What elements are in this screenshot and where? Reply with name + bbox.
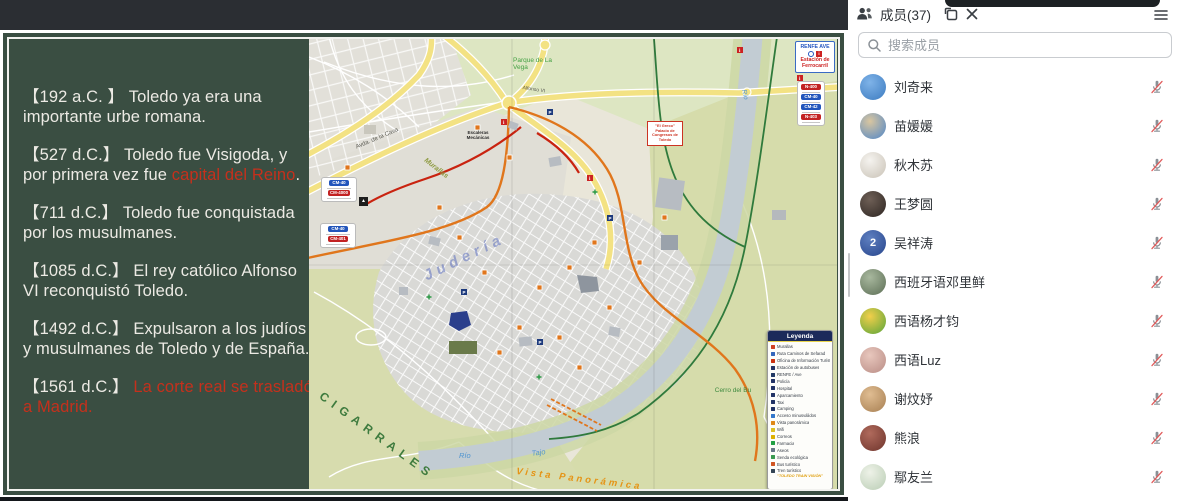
shared-screen-bottom-bar	[0, 497, 848, 501]
map-legend: Leyenda Murallas Ruta Caminos de Sefarad	[767, 330, 833, 490]
history-paragraph: 【192 a.C. 】 Toledo ya era una importante…	[23, 87, 313, 128]
avatar	[860, 191, 886, 217]
road-signs-east: N-400CM-40CM-42N-403	[797, 81, 825, 126]
member-name: 王梦圆	[894, 194, 1149, 213]
member-row[interactable]: 苗媛媛	[848, 106, 1179, 145]
member-row[interactable]: 秋木苏	[848, 145, 1179, 184]
svg-text:P: P	[609, 216, 612, 221]
legend-row: Camping	[771, 406, 830, 413]
member-name: 谢炆妤	[894, 389, 1149, 408]
museo-santa-cruz	[655, 177, 685, 210]
avatar	[860, 113, 886, 139]
legend-row: Oficina de Información Turística	[771, 357, 830, 364]
legend-swatch	[771, 373, 775, 377]
close-icon[interactable]	[964, 6, 980, 22]
legend-row: Aparcamiento	[771, 392, 830, 399]
member-name: 西语杨才钧	[894, 311, 1149, 330]
cerro-del-bu-label: Cerro del Bu	[711, 387, 755, 394]
legend-swatch	[771, 400, 775, 404]
member-row[interactable]: 鄢友兰	[848, 457, 1179, 496]
panel-title: 成员(37)	[880, 4, 931, 24]
avatar	[860, 425, 886, 451]
greco-gardens	[449, 341, 477, 354]
member-row[interactable]: 西班牙语邓里鲜	[848, 262, 1179, 301]
member-row[interactable]: 刘奇来	[848, 67, 1179, 106]
road-sign: CM-40	[329, 180, 349, 186]
legend-swatch	[771, 379, 775, 383]
member-name: 熊浪	[894, 428, 1149, 447]
road-signs-west-1: CM-40CM-4000	[321, 177, 357, 202]
toledo-map: iiii PPPP	[309, 37, 837, 491]
legend-swatch	[771, 414, 775, 418]
road-signs-west-2: CM-40CM-401	[320, 223, 356, 248]
legend-swatch	[771, 407, 775, 411]
svg-text:P: P	[463, 290, 466, 295]
toledo-map-graphic: iiii PPPP	[309, 37, 837, 491]
members-icon	[856, 6, 874, 22]
parque-la-vega-label: Parque de La Vega	[513, 57, 557, 72]
member-row[interactable]: 西语Luz	[848, 340, 1179, 379]
history-paragraph: 【1492 d.C.】 Expulsaron a los judíos y mu…	[23, 319, 313, 360]
search-members-input[interactable]	[888, 38, 1163, 53]
legend-row: Estación de autobuses	[771, 364, 830, 371]
legend-swatch	[771, 462, 775, 466]
svg-text:P: P	[549, 110, 552, 115]
member-name: 西语Luz	[894, 350, 1149, 369]
castillo-san-servando	[772, 210, 786, 220]
legend-title: Leyenda	[768, 331, 832, 342]
renfe-title: RENFE AVE	[797, 44, 833, 50]
legend-swatch	[771, 448, 775, 452]
legend-row: Senda ecológica	[771, 454, 830, 461]
history-paragraph: 【711 d.C.】 Toledo fue conquistada por lo…	[23, 203, 313, 244]
road-sign: CM-42	[801, 104, 821, 110]
legend-row: Acceso minusválidos	[771, 412, 830, 419]
legend-row: Policía	[771, 378, 830, 385]
road-sign: CM-401	[328, 236, 348, 242]
member-row[interactable]: 谢炆妤	[848, 379, 1179, 418]
member-name: 鄢友兰	[894, 467, 1149, 486]
rio-label: Río	[459, 451, 471, 460]
mic-muted-icon[interactable]	[1149, 391, 1165, 407]
legend-swatch	[771, 428, 775, 432]
legend-row: Hospital	[771, 385, 830, 392]
road-sign: CM-40	[801, 94, 821, 100]
avatar	[860, 386, 886, 412]
avatar: 2	[860, 230, 886, 256]
mic-muted-icon[interactable]	[1149, 352, 1165, 368]
mic-muted-icon[interactable]	[1149, 274, 1165, 290]
menu-icon[interactable]	[1153, 7, 1169, 23]
presentation-slide: 【192 a.C. 】 Toledo ya era una importante…	[3, 33, 844, 495]
member-name: 秋木苏	[894, 155, 1149, 174]
road-sign: CM-4000	[328, 190, 350, 196]
mic-muted-icon[interactable]	[1149, 235, 1165, 251]
history-paragraph: 【527 d.C.】 Toledo fue Visigoda, y por pr…	[23, 145, 313, 186]
legend-swatch	[771, 393, 775, 397]
member-row[interactable]: 西语杨才钧	[848, 301, 1179, 340]
popout-icon[interactable]	[943, 6, 959, 22]
member-name: 苗媛媛	[894, 116, 1149, 135]
legend-swatch	[771, 441, 775, 445]
avatar	[860, 308, 886, 334]
road-sign: N-403	[801, 114, 821, 120]
mic-muted-icon[interactable]	[1149, 313, 1165, 329]
avatar	[860, 152, 886, 178]
svg-text:P: P	[539, 340, 542, 345]
member-list: 刘奇来 苗媛媛	[848, 67, 1179, 501]
avatar	[860, 74, 886, 100]
legend-swatch	[771, 435, 775, 439]
panel-header: 成员(37)	[856, 4, 931, 24]
member-row[interactable]: 熊浪	[848, 418, 1179, 457]
member-row[interactable]: 2 吴祥涛	[848, 223, 1179, 262]
mic-muted-icon[interactable]	[1149, 157, 1165, 173]
legend-row: Aseos	[771, 447, 830, 454]
escaleras-label: Escaleras Mecánicas	[457, 131, 499, 141]
toledo-history-text: 【192 a.C. 】 Toledo ya era una importante…	[23, 87, 313, 434]
history-paragraph: 【1561 d.C.】 La corte real se trasladó a …	[23, 377, 313, 418]
mic-muted-icon[interactable]	[1149, 79, 1165, 95]
meeting-window: 【192 a.C. 】 Toledo ya era una importante…	[0, 0, 1179, 501]
mic-muted-icon[interactable]	[1149, 196, 1165, 212]
mic-muted-icon[interactable]	[1149, 469, 1165, 485]
road-sign: CM-40	[328, 226, 348, 232]
legend-swatch	[771, 352, 775, 356]
legend-swatch	[771, 469, 775, 473]
tajo-label: Tajo	[531, 447, 546, 458]
camping-icon: ▲	[359, 197, 368, 206]
members-panel: 成员(37) 刘奇来	[848, 0, 1179, 501]
legend-row: RENFE / Ave	[771, 371, 830, 378]
station-name: Estación deFerrocarril	[797, 58, 833, 70]
member-name: 刘奇来	[894, 77, 1149, 96]
shared-screen-top-bar	[0, 0, 848, 30]
shared-screen-stage: 【192 a.C. 】 Toledo ya era una importante…	[0, 0, 848, 501]
member-name: 吴祥涛	[894, 233, 1149, 252]
legend-row: Murallas	[771, 344, 830, 351]
avatar	[860, 269, 886, 295]
avatar	[860, 347, 886, 373]
renfe-station-box: RENFE AVE i Estación deFerrocarril	[795, 41, 835, 73]
legend-swatch	[771, 366, 775, 370]
legend-row: Bus turístico	[771, 461, 830, 468]
member-row[interactable]: 王梦圆	[848, 184, 1179, 223]
alcazar	[661, 235, 678, 250]
mic-muted-icon[interactable]	[1149, 430, 1165, 446]
legend-swatch	[771, 421, 775, 425]
legend-items: Murallas Ruta Caminos de Sefarad Oficina…	[768, 342, 832, 474]
legend-row: Taxi	[771, 399, 830, 406]
avatar	[860, 464, 886, 490]
palacio-congresos-callout: "El Greco" Palacio de Congresos de Toled…	[647, 121, 683, 146]
legend-swatch	[771, 455, 775, 459]
legend-row: Ruta Caminos de Sefarad	[771, 350, 830, 357]
legend-swatch	[771, 345, 775, 349]
legend-row: Vista panorámica	[771, 419, 830, 426]
mic-muted-icon[interactable]	[1149, 118, 1165, 134]
history-paragraph: 【1085 d.C.】 El rey católico Alfonso VI r…	[23, 261, 313, 302]
legend-swatch	[771, 386, 775, 390]
search-box[interactable]	[858, 32, 1172, 58]
legend-row: Correos	[771, 433, 830, 440]
legend-row: Farmacia	[771, 440, 830, 447]
member-name: 西班牙语邓里鲜	[894, 272, 1149, 291]
search-icon	[867, 38, 882, 53]
legend-footer: "TOLEDO TRAIN VISIÓN"	[768, 474, 832, 478]
road-sign: N-400	[801, 84, 821, 90]
legend-row: Wifi	[771, 426, 830, 433]
legend-swatch	[771, 359, 775, 363]
